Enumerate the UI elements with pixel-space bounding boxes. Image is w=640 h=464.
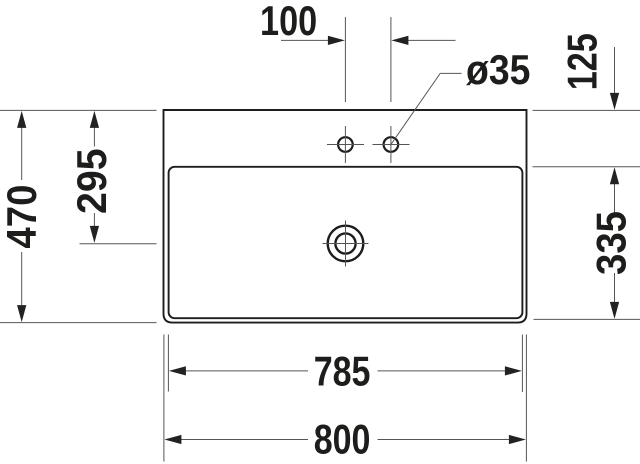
svg-text:ø35: ø35	[466, 47, 530, 93]
svg-text:335: 335	[588, 211, 635, 275]
svg-text:470: 470	[0, 185, 45, 249]
svg-text:800: 800	[314, 416, 371, 463]
svg-text:100: 100	[260, 0, 317, 45]
svg-text:295: 295	[68, 148, 116, 213]
svg-text:125: 125	[559, 33, 606, 90]
svg-text:785: 785	[314, 348, 371, 395]
